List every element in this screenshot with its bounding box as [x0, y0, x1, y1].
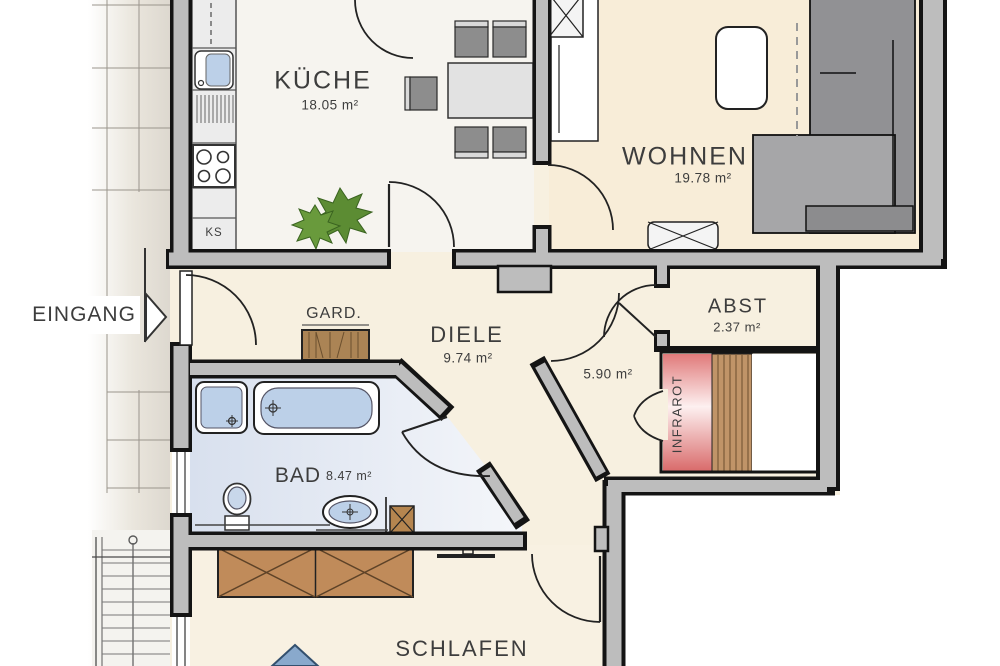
infrared-sauna	[661, 352, 818, 472]
dining-table	[448, 63, 533, 118]
dining-chair	[455, 21, 488, 57]
room-area-flur: 5.90 m²	[583, 367, 632, 382]
room-label-schlafen: SCHLAFEN	[395, 636, 528, 662]
laundry-basket	[390, 506, 414, 533]
room-area-abst: 2.37 m²	[713, 320, 761, 335]
dining-chair	[493, 127, 526, 158]
kitchen-counter	[192, 0, 236, 250]
wall-jamb	[595, 527, 608, 551]
coffee-table	[716, 27, 767, 109]
toilet	[224, 484, 251, 531]
room-label-bad: BAD	[275, 464, 321, 488]
room-area-kueche: 18.05 m²	[301, 98, 358, 113]
room-area-wohnen: 19.78 m²	[674, 171, 731, 186]
fridge-label: KS	[205, 227, 222, 239]
room-label-wohnen: WOHNEN	[622, 143, 748, 172]
stove	[193, 145, 235, 187]
sideboard	[549, 0, 598, 141]
room-label-kueche: KÜCHE	[274, 67, 372, 96]
door-leaf-entrance	[180, 271, 192, 345]
abst-partition	[655, 346, 820, 352]
bedroom-wardrobe	[218, 548, 413, 597]
wall-pier	[498, 266, 551, 292]
window	[171, 448, 191, 517]
dining-chair	[455, 127, 488, 158]
dining-chair	[493, 21, 526, 57]
bathtub	[254, 382, 379, 434]
room-area-diele: 9.74 m²	[443, 351, 492, 366]
lowboard-x	[648, 222, 718, 250]
room-label-diele: DIELE	[430, 322, 504, 348]
kitchen-sink	[195, 51, 233, 89]
floor-plan: EINGANG KÜCHE 18.05 m² WOHNEN 19.78 m² D…	[0, 0, 1000, 666]
entrance-label: EINGANG	[28, 296, 140, 334]
wardrobe-gard	[302, 325, 369, 360]
room-area-bad: 8.47 m²	[326, 469, 372, 483]
shower	[196, 382, 247, 433]
sauna-label: INFRAROT	[670, 375, 685, 453]
room-label-abst: ABST	[708, 296, 768, 319]
window	[171, 613, 191, 666]
dining-stool	[405, 77, 437, 110]
room-label-gard: GARD.	[306, 305, 362, 323]
staircase	[92, 530, 170, 666]
